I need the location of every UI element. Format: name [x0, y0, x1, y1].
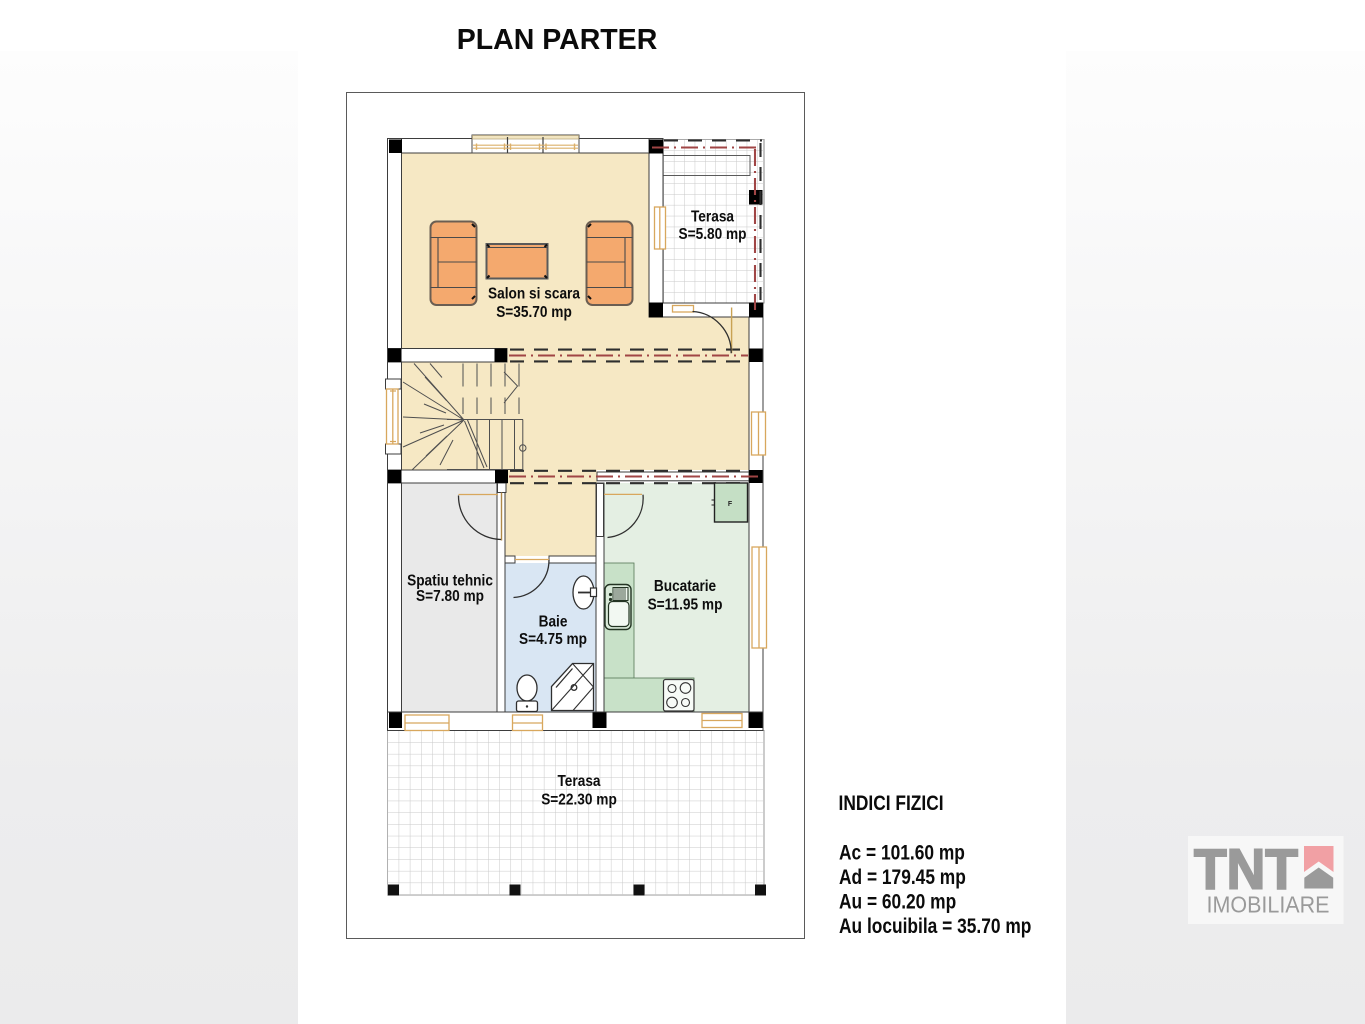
svg-text:S=35.70 mp: S=35.70 mp — [496, 304, 572, 321]
svg-text:Au locuibila = 35.70 mp: Au locuibila = 35.70 mp — [839, 916, 1031, 939]
svg-text:Ad = 179.45 mp: Ad = 179.45 mp — [839, 867, 966, 890]
svg-text:Bucatarie: Bucatarie — [654, 578, 716, 595]
svg-text:S=11.95 mp: S=11.95 mp — [648, 597, 723, 614]
svg-text:Salon si scara: Salon si scara — [488, 286, 581, 303]
svg-text:Baie: Baie — [539, 614, 568, 631]
svg-text:Ac = 101.60 mp: Ac = 101.60 mp — [839, 842, 965, 865]
svg-text:Terasa: Terasa — [557, 773, 601, 790]
svg-text:F: F — [728, 501, 733, 508]
svg-text:S=4.75 mp: S=4.75 mp — [519, 631, 587, 648]
svg-text:PLAN PARTER: PLAN PARTER — [457, 24, 658, 56]
svg-text:S=5.80 mp: S=5.80 mp — [678, 226, 746, 243]
svg-text:Terasa: Terasa — [691, 209, 735, 226]
svg-text:S=22.30 mp: S=22.30 mp — [541, 792, 617, 809]
svg-text:INDICI FIZICI: INDICI FIZICI — [839, 793, 944, 816]
svg-text:S=7.80 mp: S=7.80 mp — [416, 588, 484, 605]
svg-text:IMOBILIARE: IMOBILIARE — [1207, 892, 1330, 918]
svg-text:Au = 60.20 mp: Au = 60.20 mp — [839, 891, 956, 914]
